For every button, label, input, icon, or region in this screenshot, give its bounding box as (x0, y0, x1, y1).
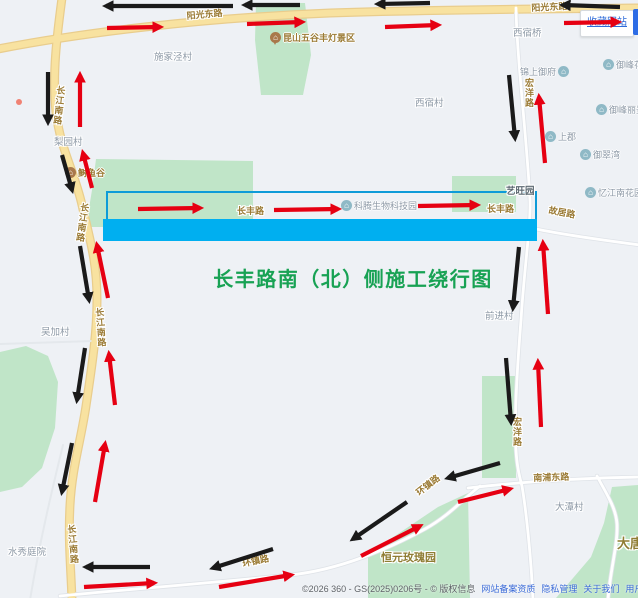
poi-scenic-icon: ⌂ (65, 167, 76, 178)
map-poi[interactable]: ⌂忆江南花园 (585, 186, 638, 199)
map-footer: ©2026 360 - GS(2025)0206号 - © 版权信息 网站备案资… (302, 582, 638, 595)
footer-link[interactable]: 关于我们 (583, 582, 619, 595)
map-poi[interactable]: ⌂御翠湾 (580, 148, 620, 161)
map-poi[interactable]: ⌂鲥鱼谷 (65, 166, 105, 179)
poi-home-icon: ⌂ (580, 149, 591, 160)
bookmark-site-button[interactable]: 收藏网站 (580, 10, 634, 37)
road-label: 长江南路 (73, 202, 91, 243)
detour-title: 长丰路南（北）侧施工绕行图 (213, 263, 493, 292)
road-label: 环镇路 (241, 551, 270, 569)
road-label: 阳光东路 (186, 6, 223, 22)
road-label: 故居路 (548, 203, 577, 221)
village-label: 水秀庭院 (8, 544, 46, 558)
poi-home-icon: ⌂ (585, 187, 596, 198)
poi-label: 昆山五谷丰灯景区 (283, 31, 355, 44)
poi-label: 鲥鱼谷 (78, 166, 105, 179)
poi-label: 忆江南花园 (598, 186, 638, 199)
road-label: 宏洋路 (511, 417, 524, 447)
road-label: 环镇路 (413, 471, 442, 498)
road-label: 阳光东路 (531, 0, 568, 14)
poi-scenic-icon: ⌂ (270, 32, 281, 43)
map-poi[interactable]: ⌂科腾生物科技园 (341, 199, 417, 212)
footer-link[interactable]: 用户协议 (625, 582, 638, 595)
poi-home-icon: ⌂ (603, 59, 614, 70)
road-label: 长江南路 (51, 85, 68, 126)
footer-link[interactable]: 隐私管理 (541, 582, 577, 595)
road-label: 长江南路 (65, 524, 81, 565)
map-canvas[interactable]: 阳光东路阳光东路长江南路长江南路长江南路长江南路长丰路长丰路故居路宏洋路宏洋路南… (0, 0, 638, 598)
map-poi[interactable]: ⌂昆山五谷丰灯景区 (270, 31, 355, 44)
village-label: 施家泾村 (154, 49, 192, 63)
footer-links: 网站备案资质隐私管理关于我们用户协议意见反馈 (481, 582, 638, 595)
poi-home-icon: ⌂ (596, 104, 607, 115)
map-poi[interactable]: ⌂御峰丽景 (596, 103, 638, 116)
side-panel-button[interactable] (633, 9, 638, 35)
poi-home-icon: ⌂ (545, 131, 556, 142)
poi-label: 上郡 (558, 130, 576, 143)
village-label: 西宿桥 (513, 25, 542, 39)
map-poi[interactable]: ⌂御峰花园 (603, 58, 638, 71)
road-label: 南浦东路 (533, 470, 569, 484)
brown-label: 恒元玫瑰园 (381, 549, 436, 565)
road-label: 长丰路 (487, 202, 514, 215)
poi-label: 科腾生物科技园 (354, 199, 417, 212)
poi-home-icon: ⌂ (341, 200, 352, 211)
village-label: 西宿村 (415, 95, 444, 109)
map-copyright: ©2026 360 - GS(2025)0206号 - © 版权信息 (302, 582, 475, 595)
brown-label: 大唐 (617, 533, 638, 552)
poi-label: 御峰丽景 (609, 103, 638, 116)
village-label: 梨园村 (54, 134, 83, 148)
map-poi[interactable]: 锦上御府⌂ (520, 65, 569, 78)
village-label: 吴加村 (41, 324, 70, 338)
village-label: 前进村 (485, 308, 514, 322)
map-poi[interactable]: ⌂上郡 (545, 130, 576, 143)
poi-label: 锦上御府 (520, 65, 556, 78)
area-label: 艺旺园 (506, 183, 535, 197)
poi-home-icon: ⌂ (558, 66, 569, 77)
footer-link[interactable]: 网站备案资质 (481, 582, 535, 595)
poi-label: 御翠湾 (593, 148, 620, 161)
road-label: 长丰路 (237, 204, 264, 217)
road-label: 宏洋路 (523, 78, 536, 108)
road-label: 长江南路 (93, 307, 109, 348)
poi-label: 御峰花园 (616, 58, 638, 71)
map-labels-layer: 阳光东路阳光东路长江南路长江南路长江南路长江南路长丰路长丰路故居路宏洋路宏洋路南… (0, 0, 638, 598)
bookmark-site-label: 收藏网站 (587, 17, 627, 28)
village-label: 大潭村 (555, 499, 584, 513)
